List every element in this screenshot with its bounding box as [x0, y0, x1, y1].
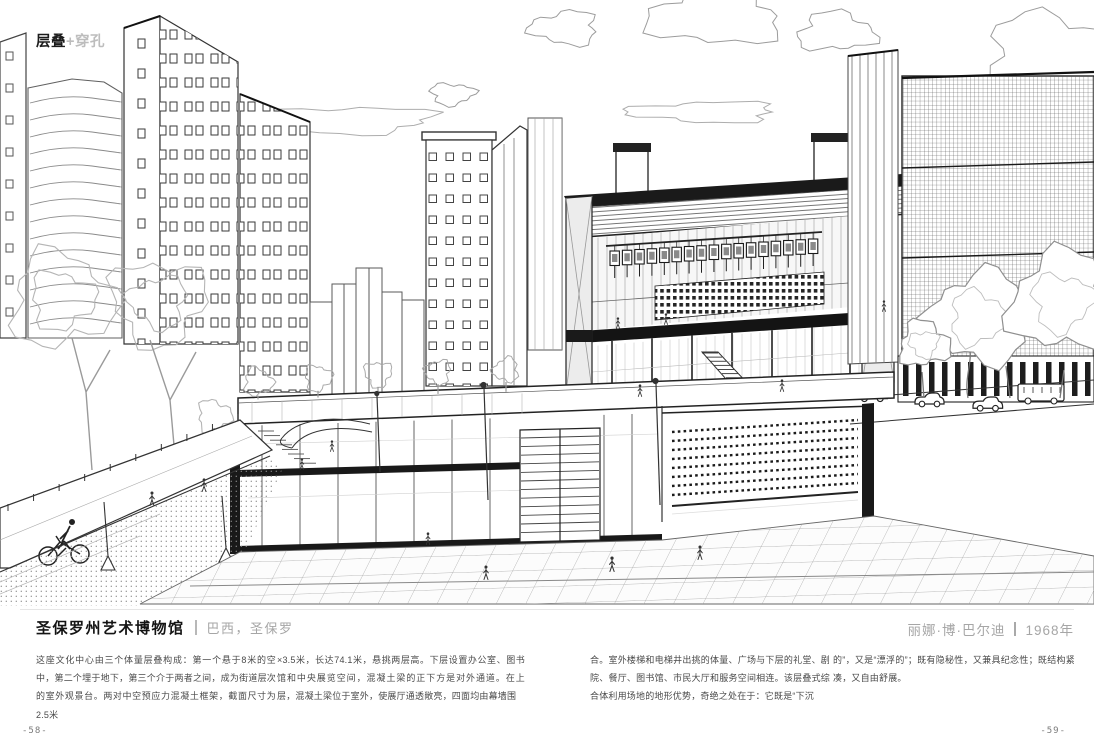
stepped-midrise-cluster [310, 268, 424, 398]
section-perspective-illustration [0, 0, 1094, 612]
body-column-1: 这座文化中心由三个体量层叠构成：第一个悬于8米的空中，第二个埋于地下，第三个介于… [36, 651, 276, 724]
chapter-header-bold: 层叠 [36, 34, 66, 50]
project-title: 圣保罗州艺术博物馆 [36, 617, 185, 638]
body-column-3: 合。室外楼梯和电梯井出挑的体量、广场与下层的礼堂、剧院、餐厅、图书馆、市民大厅和… [590, 651, 830, 706]
sunken-plaza-paving [140, 516, 1094, 604]
architect-name: 丽娜·博·巴尔迪 [907, 619, 1005, 639]
midrise-punched-windows [422, 126, 527, 386]
page-number-right: -59- [1040, 726, 1066, 736]
title-separator-bar [195, 620, 197, 635]
caption-divider [20, 609, 1074, 610]
body-column-2: ×3.5米，长达74.1米，悬挑两层高。下层设置办公室、图书馆和中央展览空间，混… [277, 651, 525, 706]
page-number-left: -58- [22, 726, 48, 736]
chapter-header-light: +穿孔 [66, 34, 105, 50]
body-column-4: 的”，又是“漂浮的”；既有隐秘性，又兼具纪念性；既结构紧凑，又自由舒展。 [833, 651, 1075, 687]
chapter-header: 层叠+穿孔 [36, 30, 105, 51]
book-spread: 层叠+穿孔 圣保罗州艺术博物馆 巴西，圣保罗 丽娜·博·巴尔迪 1968年 这座… [0, 0, 1094, 750]
project-year: 1968年 [1025, 619, 1074, 639]
underground-auditorium [672, 420, 858, 495]
project-title-block: 圣保罗州艺术博物馆 巴西，圣保罗 [36, 617, 294, 638]
city-skyline-left [0, 16, 562, 398]
architect-separator-bar [1014, 622, 1016, 636]
project-location: 巴西，圣保罗 [207, 618, 294, 637]
architect-block: 丽娜·博·巴尔迪 1968年 [907, 619, 1074, 639]
